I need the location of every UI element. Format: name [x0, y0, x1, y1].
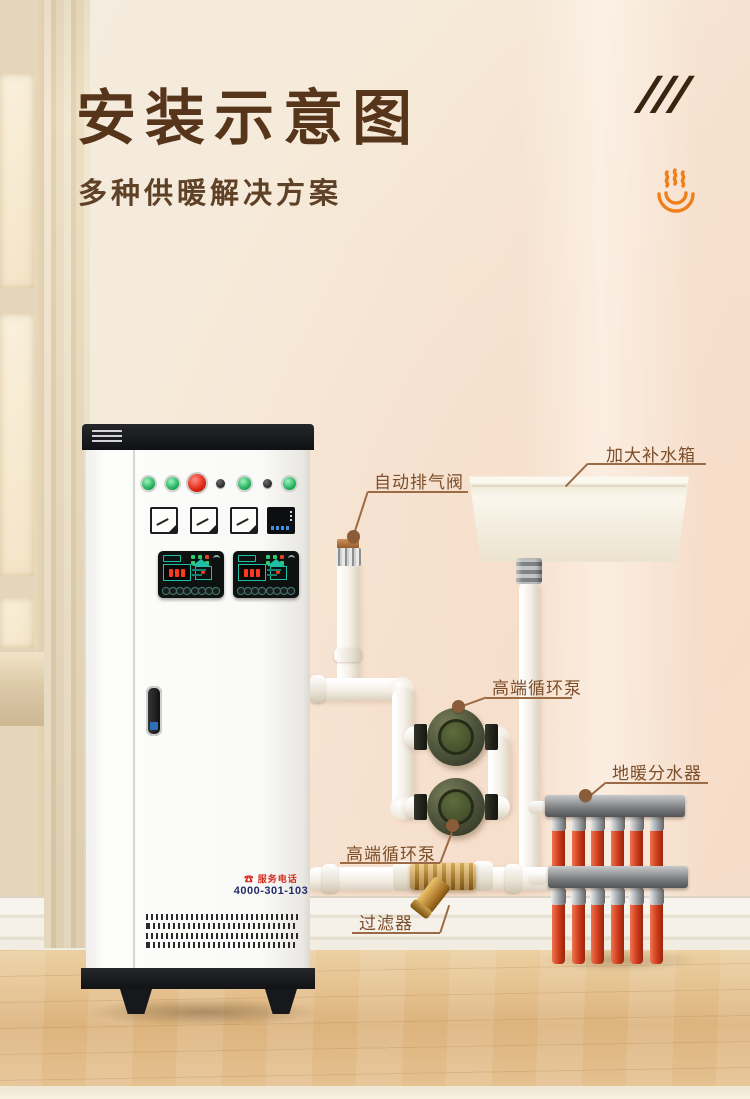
pipe-coupling — [505, 864, 521, 893]
emergency-stop-button — [188, 474, 206, 492]
manifold-stub-pipe — [528, 872, 548, 885]
wifi-icon — [213, 555, 220, 562]
pump-flange — [485, 794, 498, 820]
window-pane — [0, 598, 34, 648]
filter-union — [473, 861, 493, 891]
panel-flow-line — [267, 569, 281, 571]
callout-underline — [486, 697, 572, 699]
window-pane — [0, 74, 34, 288]
callout-underline — [606, 782, 708, 784]
callout-dot — [347, 530, 360, 543]
service-phone-number: 4000-301-103 — [204, 885, 338, 897]
callout-pump-upper: 高端循环泵 — [492, 674, 582, 699]
tank-threaded-connector — [516, 558, 542, 584]
panel-digit-display — [238, 564, 266, 581]
water-tank — [462, 470, 696, 562]
panel-tag — [238, 555, 256, 562]
pipe-tank-riser — [519, 580, 539, 882]
manifold-pipe-nut — [571, 888, 586, 905]
manifold-pipe-nut — [629, 888, 644, 905]
manifold-pipe-nut — [590, 888, 605, 905]
pipe-coupling — [310, 675, 325, 703]
cabinet-base — [81, 968, 315, 989]
indicator-light-green — [238, 477, 251, 490]
analog-meter — [230, 507, 258, 534]
toggle-switch — [216, 479, 225, 488]
pump-flange — [414, 794, 427, 820]
pipe-airvent-riser — [337, 558, 359, 696]
service-phone-label: ☎ 服务电话 — [204, 872, 338, 885]
toggle-switch — [263, 479, 272, 488]
door-handle — [146, 686, 162, 736]
panel-flow-line — [267, 574, 277, 576]
indicator-light-green — [283, 477, 296, 490]
manifold-pipe-nut — [649, 888, 664, 905]
manifold-pipe-nut — [610, 888, 625, 905]
bottom-fade-strip — [0, 1086, 750, 1099]
analog-meter — [190, 507, 218, 534]
page-title: 安装示意图 — [76, 70, 421, 157]
manifold-bar-upper — [545, 795, 685, 817]
page-subtitle: 多种供暖解决方案 — [78, 170, 342, 212]
electric-boiler-cabinet: ☎ 服务电话 4000-301-103 — [86, 424, 310, 968]
panel-buttons — [163, 588, 219, 594]
pump-flange — [485, 724, 498, 750]
panel-buttons — [238, 588, 294, 594]
control-display-panel — [158, 551, 224, 598]
callout-underline — [588, 463, 706, 465]
callout-underline — [340, 862, 440, 864]
callout-air-vent-valve: 自动排气阀 — [374, 468, 464, 493]
poster: 安装示意图 多种供暖解决方案 /// — [0, 0, 750, 1099]
water-tank-rim-line — [472, 485, 686, 487]
panel-digit-display — [163, 564, 191, 581]
cabinet-door-seam — [133, 450, 135, 968]
service-contact: ☎ 服务电话 4000-301-103 — [204, 872, 338, 900]
panel-tag — [163, 555, 181, 562]
cabinet-top-cap — [82, 424, 314, 450]
manifold-bar-lower — [548, 866, 688, 888]
pump-flange — [414, 724, 427, 750]
air-vent-valve — [335, 548, 361, 566]
control-display-panel — [233, 551, 299, 598]
digital-temperature-controller — [267, 507, 295, 534]
heat-steam-icon — [653, 168, 699, 214]
window-sill-lower — [0, 686, 50, 726]
door-lock — [150, 722, 158, 730]
brand-logo — [92, 430, 122, 443]
callout-dot — [446, 819, 459, 832]
callout-dot — [452, 700, 465, 713]
manifold-pipe-nut — [551, 888, 566, 905]
callout-underline — [352, 932, 440, 934]
window-pane — [0, 314, 34, 576]
panel-flow-line — [192, 569, 206, 571]
indicator-light-green — [166, 477, 179, 490]
callout-underline — [368, 491, 468, 493]
callout-filter: 过滤器 — [359, 909, 413, 934]
circulation-pump-upper — [427, 708, 485, 766]
ventilation-grille — [146, 914, 298, 948]
indicator-light-green — [142, 477, 155, 490]
callout-dot — [579, 789, 592, 802]
analog-meter — [150, 507, 178, 534]
callout-manifold: 地暖分水器 — [612, 759, 702, 784]
pipe-coupling — [334, 648, 362, 662]
panel-flow-line — [192, 574, 202, 576]
wifi-icon — [288, 555, 295, 562]
